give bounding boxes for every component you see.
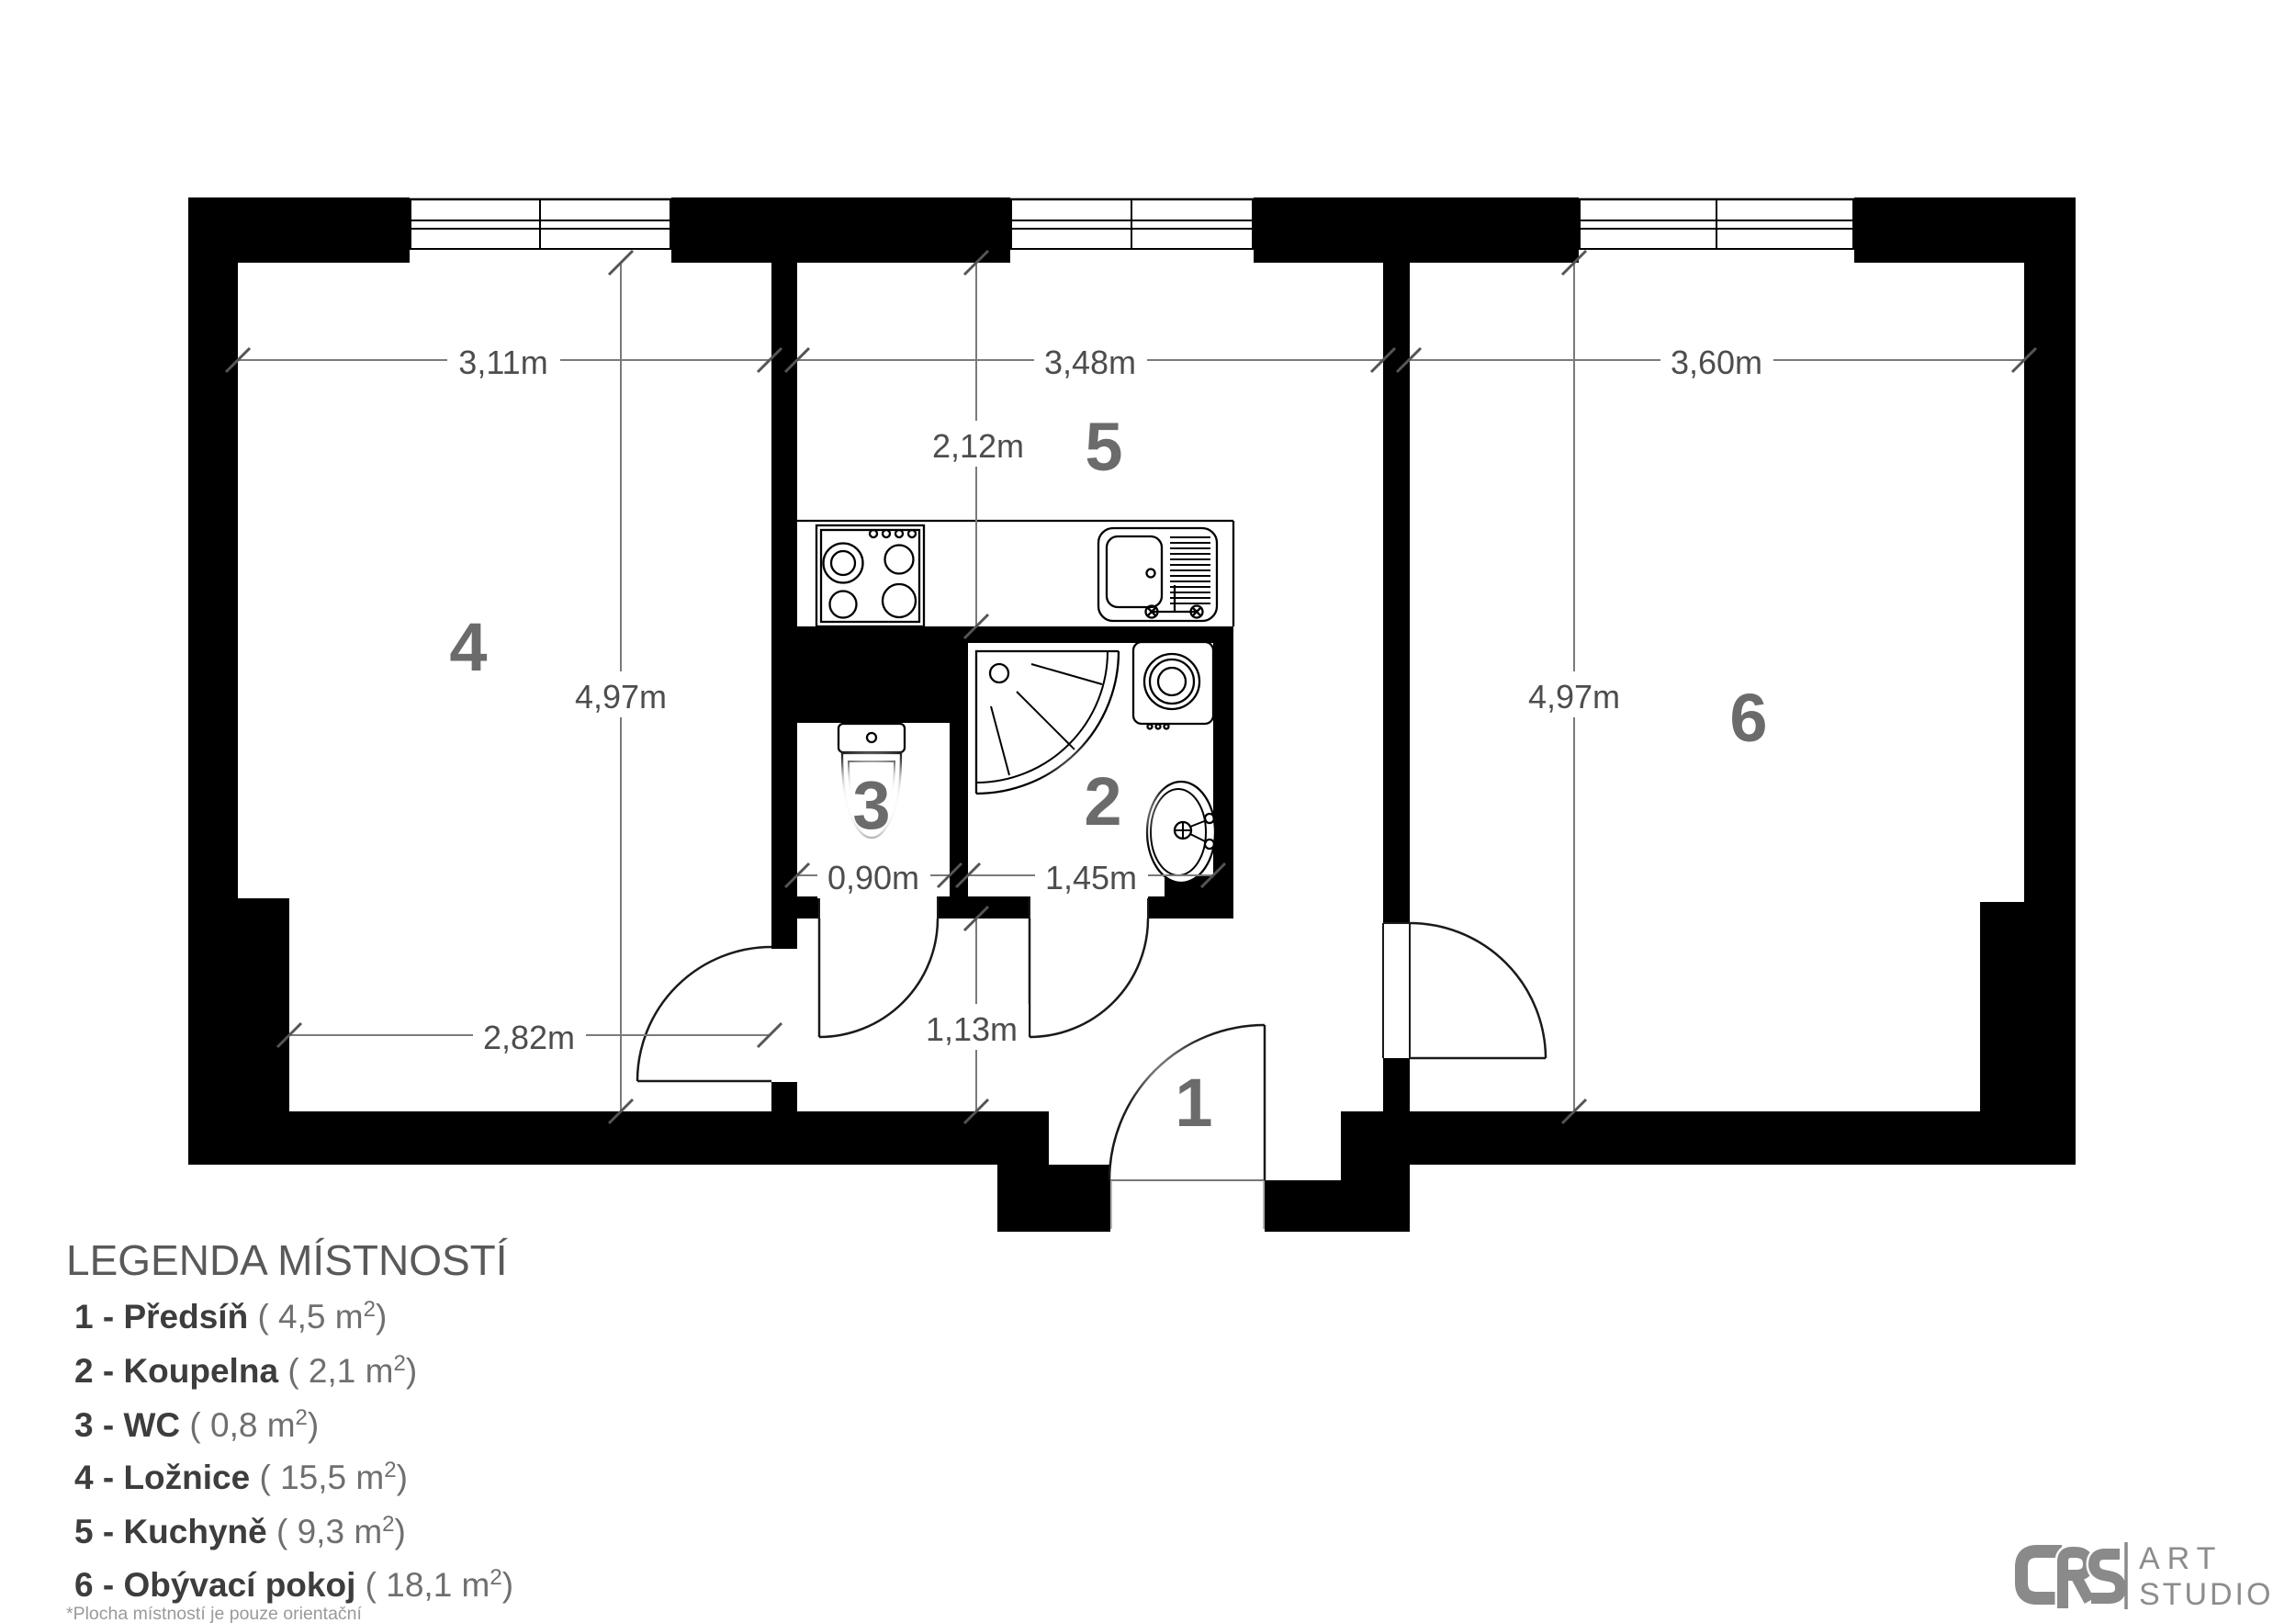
svg-text:4,97m: 4,97m	[575, 678, 667, 716]
svg-text:LEGENDA MÍSTNOSTÍ: LEGENDA MÍSTNOSTÍ	[66, 1236, 508, 1284]
svg-text:4: 4	[449, 609, 487, 685]
svg-text:4 - Ložnice ( 15,5 m2): 4 - Ložnice ( 15,5 m2)	[74, 1458, 408, 1496]
svg-text:0,90m: 0,90m	[827, 859, 919, 896]
svg-text:3: 3	[852, 767, 890, 843]
svg-text:1 - Předsíň ( 4,5 m2): 1 - Předsíň ( 4,5 m2)	[74, 1297, 387, 1336]
svg-text:1: 1	[1175, 1065, 1212, 1141]
svg-text:3 - WC ( 0,8 m2): 3 - WC ( 0,8 m2)	[74, 1405, 319, 1444]
svg-text:6 - Obývací pokoj ( 18,1 m2): 6 - Obývací pokoj ( 18,1 m2)	[74, 1565, 513, 1604]
svg-text:4,97m: 4,97m	[1528, 678, 1620, 716]
svg-text:6: 6	[1729, 680, 1767, 756]
svg-text:ART: ART	[2139, 1541, 2223, 1576]
svg-text:2: 2	[1084, 763, 1121, 840]
svg-text:STUDIO: STUDIO	[2139, 1577, 2273, 1612]
svg-text:3,48m: 3,48m	[1044, 344, 1136, 381]
svg-text:3,60m: 3,60m	[1671, 344, 1762, 381]
svg-text:3,11m: 3,11m	[458, 344, 547, 381]
svg-text:*Plocha místností je pouze ori: *Plocha místností je pouze orientační	[66, 1604, 363, 1623]
svg-text:1,13m: 1,13m	[926, 1010, 1018, 1048]
svg-text:2,12m: 2,12m	[932, 427, 1024, 465]
svg-text:5: 5	[1085, 409, 1122, 485]
svg-text:1,45m: 1,45m	[1045, 859, 1137, 896]
svg-text:5 - Kuchyně ( 9,3 m2): 5 - Kuchyně ( 9,3 m2)	[74, 1512, 406, 1550]
svg-text:2 - Koupelna ( 2,1 m2): 2 - Koupelna ( 2,1 m2)	[74, 1351, 417, 1390]
svg-text:2,82m: 2,82m	[483, 1019, 575, 1056]
